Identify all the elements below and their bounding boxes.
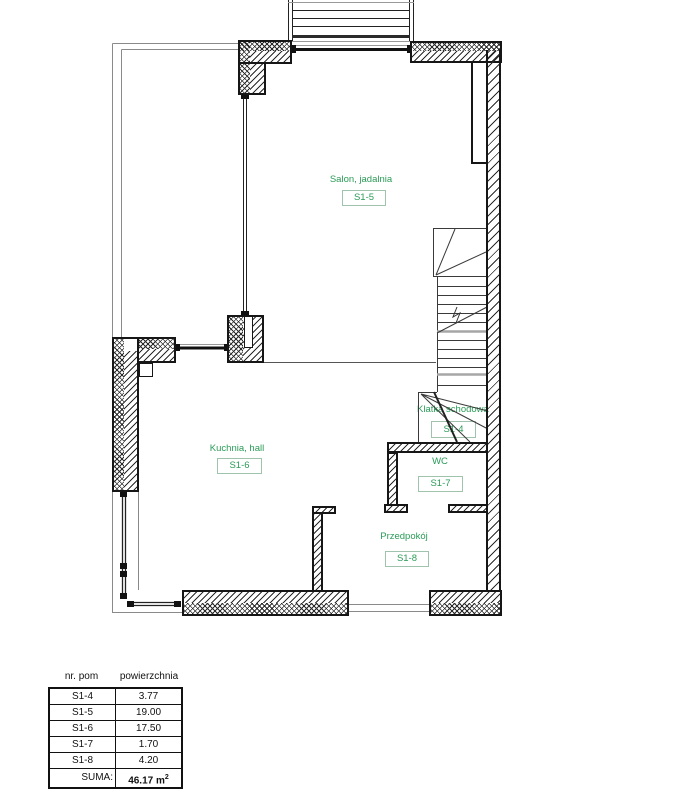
wall-pier-top-left-horizontal — [238, 40, 292, 64]
area-table-header: nr. pom powierzchnia — [48, 671, 183, 687]
staircase-symbol — [419, 229, 489, 443]
wall-slot — [244, 317, 253, 348]
area-table: nr. pom powierzchnia S1-4 3.77 S1-5 19.0… — [48, 671, 183, 789]
wall-notch-left — [139, 363, 153, 377]
table-row: S1-8 4.20 — [50, 752, 181, 768]
wall-pier-middle — [227, 315, 264, 363]
total-exponent: 2 — [165, 774, 169, 781]
wall-pier-top-left-vertical — [238, 62, 266, 95]
wall-bottom-left — [182, 590, 349, 616]
wall-wc-top — [387, 442, 488, 453]
wall-layer-crosshatch — [184, 603, 347, 614]
total-label: SUMA: — [50, 769, 116, 787]
cell-area: 3.77 — [116, 689, 181, 704]
table-row: S1-4 3.77 — [50, 689, 181, 704]
header-room-number: nr. pom — [48, 671, 115, 687]
wall-layer-diagonal — [124, 351, 137, 490]
wall-right-exterior — [486, 50, 501, 605]
table-row-total: SUMA: 46.17 m2 — [50, 768, 181, 787]
wall-bottom-right — [429, 590, 502, 616]
total-area: 46.17 m2 — [116, 769, 181, 787]
wall-layer-diagonal — [184, 592, 347, 603]
wall-wc-bottom — [448, 504, 488, 513]
cell-area: 1.70 — [116, 737, 181, 752]
table-row: S1-6 17.50 — [50, 720, 181, 736]
cell-room: S1-6 — [50, 721, 116, 736]
cell-room: S1-7 — [50, 737, 116, 752]
cell-area: 19.00 — [116, 705, 181, 720]
cell-room: S1-4 — [50, 689, 116, 704]
wall-layer-crosshatch — [229, 317, 243, 361]
wall-wc-left — [387, 452, 398, 508]
wall-wc-left-flag — [384, 504, 408, 513]
wall-layer-crosshatch — [431, 603, 500, 614]
wall-niche-right — [471, 63, 487, 164]
wall-hall-partition-flag — [312, 506, 336, 514]
door-thresholds — [289, 45, 429, 612]
wall-layer-diagonal — [250, 64, 264, 93]
wall-layer-crosshatch — [240, 64, 250, 93]
entrance-stairs — [288, 0, 414, 42]
wall-layer-crosshatch — [240, 42, 250, 62]
table-row: S1-5 19.00 — [50, 704, 181, 720]
cell-room: S1-8 — [50, 753, 116, 768]
wall-left-exterior — [112, 337, 139, 492]
floor-plan-page: Salon, jadalnia S1-5 Kuchnia, hall S1-6 … — [0, 0, 686, 793]
table-row: S1-7 1.70 — [50, 736, 181, 752]
cell-area: 4.20 — [116, 753, 181, 768]
wall-layer-diagonal — [431, 592, 500, 603]
total-value: 46.17 m — [128, 775, 165, 786]
header-area: powierzchnia — [115, 671, 183, 687]
terrace-outline — [113, 44, 241, 614]
wall-layer-crosshatch — [114, 339, 124, 490]
area-table-grid: S1-4 3.77 S1-5 19.00 S1-6 17.50 S1-7 1.7… — [48, 687, 183, 789]
wall-hall-partition — [312, 506, 323, 592]
cell-room: S1-5 — [50, 705, 116, 720]
wall-layer-diagonal — [250, 51, 290, 62]
cell-area: 17.50 — [116, 721, 181, 736]
